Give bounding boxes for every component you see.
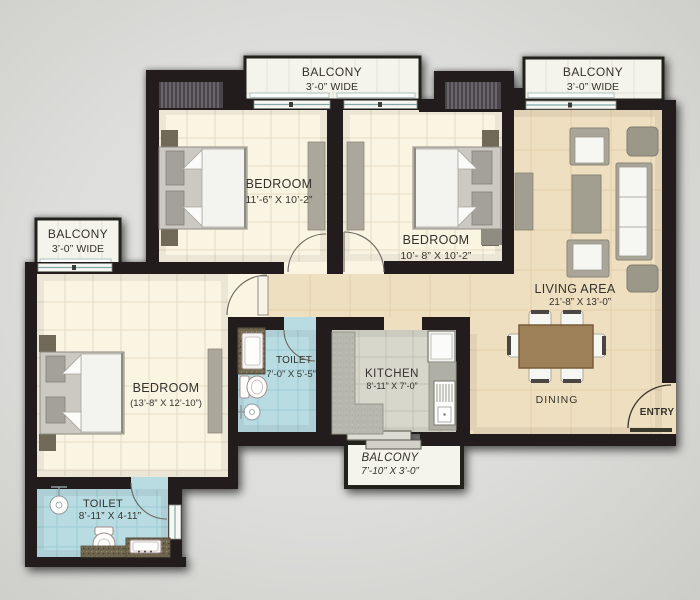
svg-text:7’-10” X 3’-0”: 7’-10” X 3’-0” bbox=[361, 466, 419, 477]
svg-text:BALCONY: BALCONY bbox=[302, 65, 362, 79]
svg-text:8’-11” X 7’-0”: 8’-11” X 7’-0” bbox=[366, 381, 417, 391]
svg-text:21’-8” X 13’-0”: 21’-8” X 13’-0” bbox=[549, 297, 611, 308]
svg-text:3’-0” WIDE: 3’-0” WIDE bbox=[306, 81, 358, 93]
svg-text:BALCONY: BALCONY bbox=[563, 65, 623, 79]
svg-text:8’-11” X 4-11”: 8’-11” X 4-11” bbox=[79, 511, 141, 522]
svg-text:BEDROOM: BEDROOM bbox=[403, 233, 470, 247]
svg-text:KITCHEN: KITCHEN bbox=[365, 368, 419, 380]
svg-text:(13’-8” X 12’-10”): (13’-8” X 12’-10”) bbox=[130, 398, 202, 409]
svg-text:7’-0” X 5’-5”: 7’-0” X 5’-5” bbox=[266, 369, 316, 380]
svg-text:BALCONY: BALCONY bbox=[48, 227, 108, 241]
svg-text:LIVING AREA: LIVING AREA bbox=[534, 282, 615, 296]
svg-text:BEDROOM: BEDROOM bbox=[246, 177, 313, 191]
svg-text:TOILET: TOILET bbox=[276, 355, 312, 366]
svg-text:3’-0” WIDE: 3’-0” WIDE bbox=[567, 81, 619, 93]
svg-text:TOILET: TOILET bbox=[83, 498, 123, 510]
svg-text:11’-6” X 10’-2”: 11’-6” X 10’-2” bbox=[245, 194, 313, 206]
svg-text:ENTRY: ENTRY bbox=[640, 407, 675, 418]
svg-text:10’- 8” X 10’-2”: 10’- 8” X 10’-2” bbox=[400, 250, 471, 262]
svg-text:DINING: DINING bbox=[536, 394, 579, 406]
svg-text:3’-0” WIDE: 3’-0” WIDE bbox=[52, 243, 104, 255]
svg-text:BALCONY: BALCONY bbox=[361, 452, 419, 464]
svg-text:BEDROOM: BEDROOM bbox=[133, 381, 200, 395]
